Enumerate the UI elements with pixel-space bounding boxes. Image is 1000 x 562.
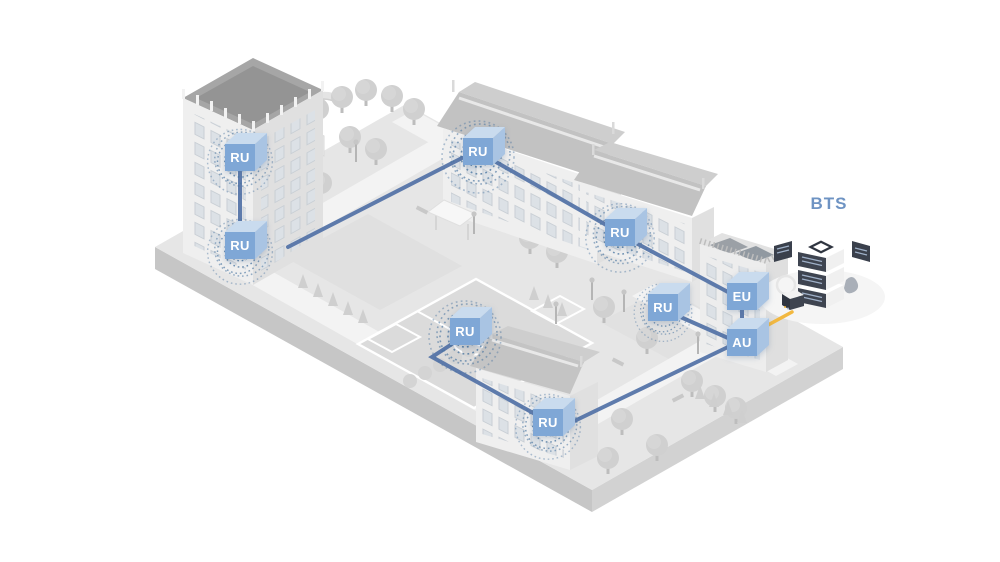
node-ru-2: RU <box>225 221 267 259</box>
node-label: AU <box>727 329 757 356</box>
node-ru-6: RU <box>450 307 492 345</box>
node-ru-3: RU <box>463 127 505 165</box>
campus-scene <box>0 0 1000 562</box>
node-eu: EU <box>727 272 769 310</box>
node-label: RU <box>605 219 635 246</box>
node-label: EU <box>727 283 757 310</box>
node-label: RU <box>648 294 678 321</box>
das-network-illustration: RU RU RU RU RU RU RU EU AU BTS <box>0 0 1000 562</box>
node-label: RU <box>225 144 255 171</box>
node-ru-5: RU <box>648 283 690 321</box>
node-label: RU <box>225 232 255 259</box>
node-ru-7: RU <box>533 398 575 436</box>
node-label: RU <box>463 138 493 165</box>
node-ru-4: RU <box>605 208 647 246</box>
bts-label: BTS <box>801 194 857 214</box>
node-label: RU <box>533 409 563 436</box>
bts-server-stack <box>798 238 844 308</box>
node-ru-1: RU <box>225 133 267 171</box>
bts-site <box>759 238 885 324</box>
node-au: AU <box>727 318 769 356</box>
node-label: RU <box>450 318 480 345</box>
